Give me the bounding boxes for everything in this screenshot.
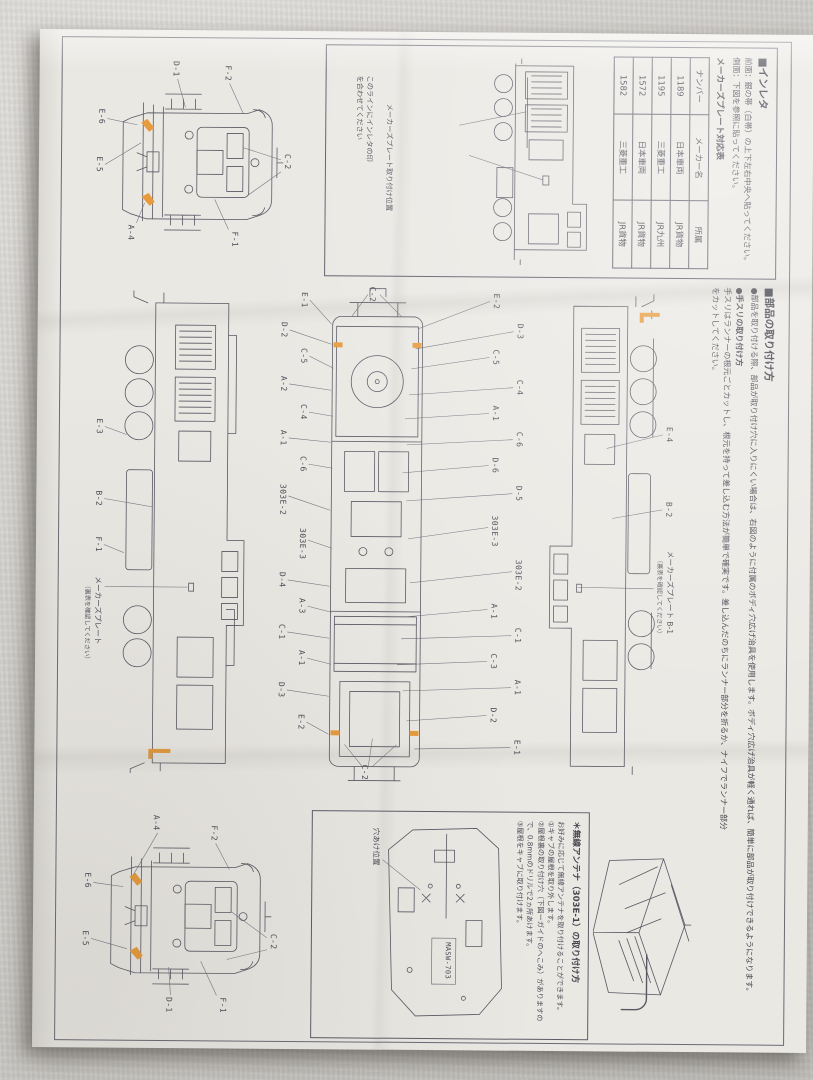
cab-perspective-line-art	[592, 858, 691, 995]
inreta-note-front: 前面：銀の帯（白帯）の上下左右中央へ貼ってください。	[740, 57, 754, 269]
roof-outline	[388, 828, 503, 1017]
part-label: E-5	[95, 156, 104, 172]
part-label: D-1	[164, 997, 173, 1013]
part-label: E-4	[665, 427, 674, 443]
part-label: C-2	[368, 287, 377, 303]
antenna-step-3: ③屋根をキャブに取り付けます。	[513, 821, 525, 1031]
side-view-lower: E-3 B-2 F-1 メーカーズプレート （裏表を確認してください）	[78, 284, 274, 790]
table-cell: 1582	[613, 57, 632, 114]
top-view-leaders-below	[286, 300, 333, 734]
callout-plate-position: メーカーズプレート取り付け位置	[383, 104, 394, 254]
table-row: 1195 三菱重工 JR九州	[650, 57, 671, 268]
top-view: E-2 D-3 C-5 C-4 A-1 C-6 D-6 D-5 303E-3 3…	[274, 286, 538, 793]
part-label: C-6	[515, 432, 524, 448]
inreta-section: ■インレタ 前面：銀の帯（白帯）の上下左右中央へ貼ってください。 側面：下図を参…	[324, 44, 778, 280]
part-label: D-3	[516, 324, 525, 340]
part-label: F-2	[224, 65, 233, 81]
front-view-line-art	[111, 848, 272, 985]
part-label: A-4	[126, 225, 135, 241]
antenna-hook-art	[621, 955, 646, 1010]
loco-side-line-art	[122, 291, 246, 774]
table-header: ナンバー	[689, 58, 708, 115]
photo-of-instruction-sheet: ■インレタ 前面：銀の帯（白帯）の上下左右中央へ貼ってください。 側面：下図を参…	[0, 0, 813, 1080]
part-label: A-4	[152, 815, 161, 831]
loco-side-line-art-flipped	[548, 294, 657, 775]
table-cell: 1195	[651, 57, 670, 114]
part-label: C-3	[489, 654, 498, 670]
part-label: B-2	[94, 490, 103, 506]
part-label: E-6	[83, 872, 92, 888]
part-label: F-1	[218, 997, 227, 1013]
table-cell: 日本車両	[670, 114, 690, 201]
part-label: E-5	[81, 930, 90, 946]
top-view-line-art	[329, 288, 423, 781]
part-label: E-2	[297, 714, 306, 730]
table-cell: JR貨物	[669, 201, 689, 269]
part-label: C-1	[277, 624, 286, 640]
part-label: A-1	[279, 430, 288, 446]
loco-side-view-small	[493, 59, 588, 266]
part-label: D-5	[514, 486, 523, 502]
front-view-line-art	[122, 94, 283, 231]
part-label: C-5	[491, 350, 500, 366]
part-label: 303E-3	[298, 528, 307, 559]
table-header: 所属	[688, 201, 708, 269]
table-cell: JR九州	[650, 201, 670, 269]
top-view-highlights	[330, 342, 421, 736]
table-cell: 日本車両	[632, 114, 652, 201]
part-label: D-2	[280, 322, 289, 338]
front-view-end-a: D-1 F-2 C-2 F-1 A-4 E-6 E-5	[82, 46, 316, 276]
inreta-side-view-art	[454, 55, 608, 268]
callout-align-line: このラインにインレタの印を合わせてください	[354, 75, 375, 165]
part-label: 303E-2	[514, 560, 523, 591]
part-label: D-1	[172, 61, 181, 77]
part-label: E-2	[492, 294, 501, 310]
front-a-leaders	[104, 78, 281, 229]
part-marking-plate: MASW-703	[432, 938, 456, 984]
part-label: C-4	[515, 380, 524, 396]
table-cell: JR貨物	[612, 200, 632, 268]
table-header: メーカー名	[689, 115, 709, 202]
part-label: A-3	[297, 598, 306, 614]
plate-table: ナンバー メーカー名 所属 1189 日本車両 JR貨物 1195 三菱重工 J…	[612, 56, 710, 269]
sheet-content-rotated: ■インレタ 前面：銀の帯（白帯）の上下左右中央へ貼ってください。 側面：下図を参…	[54, 36, 792, 1046]
part-label: C-2	[269, 934, 278, 950]
part-label: C-1	[513, 628, 522, 644]
part-label: F-1	[94, 536, 103, 552]
antenna-section: ＊無線アンテナ（303E-1）の取り付け方 お好みに応じて無線アンテナを取り付け…	[310, 810, 590, 1040]
part-label: C-4	[299, 404, 308, 420]
part-label: E-1	[300, 292, 309, 308]
instruction-sheet-paper: ■インレタ 前面：銀の帯（白帯）の上下左右中央へ貼ってください。 側面：下図を参…	[32, 29, 813, 1053]
table-row: 1582 三菱重工 JR貨物	[612, 57, 633, 268]
front-view-end-b: A-4 F-2 C-2 F-1 D-1 E-6 E-5	[70, 798, 304, 1030]
plate-table-title: メーカーズプレート対応表	[711, 57, 726, 269]
part-label: E-3	[95, 418, 104, 434]
plate-table-header-row: ナンバー メーカー名 所属	[688, 58, 709, 269]
parts-paragraph-2: 手スリはランナーの根元ごとカットし、根元を持って差し込む方法が簡単で確実です。差…	[705, 287, 733, 832]
part-label: C-2	[360, 765, 369, 781]
part-label: D-6	[491, 458, 500, 474]
side-upper-highlight	[640, 313, 660, 323]
part-label: F-1	[230, 231, 239, 247]
antenna-step-2: ②屋根裏の取り付け穴（下図ーガイドのへこみ）がありますので、0.8mmのドリルで…	[524, 821, 546, 1031]
antenna-body: お好みに応じて無線アンテナを取り付けることができます。	[554, 821, 566, 1031]
part-label: E-6	[97, 108, 106, 124]
part-label: 303E-2	[278, 484, 287, 515]
table-cell: 1189	[670, 57, 689, 114]
part-label: A-1	[489, 604, 498, 620]
side-lower-highlight	[148, 749, 170, 759]
part-label: C-5	[299, 348, 308, 364]
hole-position-label: 穴あけ位置	[372, 828, 382, 866]
part-label: E-1	[512, 740, 521, 756]
part-label: A-2	[279, 376, 288, 392]
part-label: メーカーズプレート B-1	[665, 551, 676, 634]
cab-antenna-perspective-art	[592, 836, 706, 1037]
table-cell: 三菱重工	[613, 114, 633, 201]
part-label: D-4	[278, 572, 287, 588]
part-label: メーカーズプレート	[93, 576, 104, 644]
part-label: B-2	[664, 502, 673, 518]
table-cell: 1572	[632, 57, 651, 114]
part-label: A-1	[297, 650, 306, 666]
part-label-note: （裏表を確認してください）	[655, 557, 664, 637]
part-label: C-6	[299, 456, 308, 472]
inreta-title: ■インレタ	[754, 58, 770, 270]
part-label: D-3	[277, 682, 286, 698]
part-label: F-2	[210, 825, 219, 841]
table-cell: 三菱重工	[651, 114, 671, 201]
part-label: 303E-3	[490, 516, 499, 547]
part-marking-text: MASW-703	[444, 942, 452, 979]
parts-section: ■部品の取り付け方 ●部品を取り付ける際、部品が取り付け穴に入りにくい場合は、右…	[703, 287, 776, 1036]
part-label: C-2	[283, 154, 292, 170]
table-row: 1572 日本車両 JR貨物	[631, 57, 652, 268]
roof-drill-diagram: MASW-703 穴あけ位置	[369, 820, 511, 1031]
table-cell: JR貨物	[631, 201, 651, 269]
antenna-title: ＊無線アンテナ（303E-1）の取り付け方	[567, 821, 582, 1021]
part-label: D-2	[489, 708, 498, 724]
inreta-callout-leaders	[458, 111, 543, 180]
part-label: A-1	[491, 406, 500, 422]
part-label-note: （裏表を確認してください）	[83, 582, 92, 662]
part-label: A-1	[513, 680, 522, 696]
table-row: 1189 日本車両 JR貨物	[669, 57, 690, 268]
